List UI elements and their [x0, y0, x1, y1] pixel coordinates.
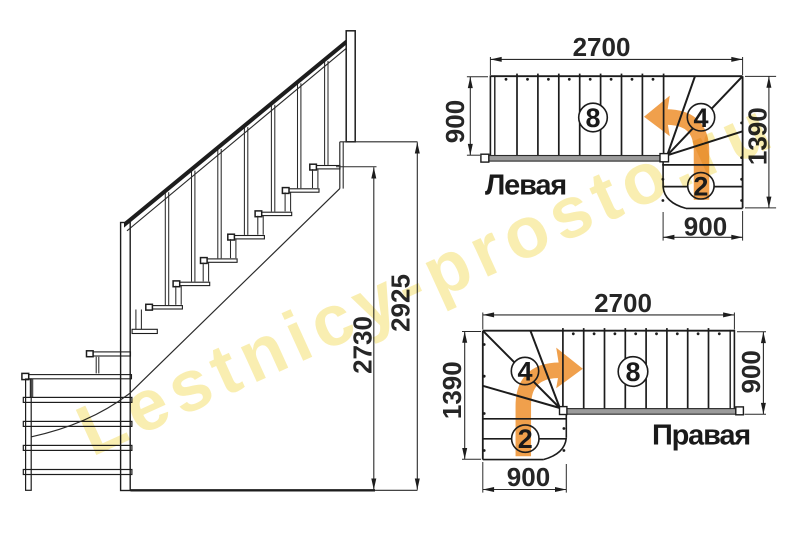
svg-text:900: 900 [684, 211, 727, 241]
svg-text:8: 8 [585, 103, 600, 133]
svg-text:900: 900 [736, 350, 766, 393]
svg-text:900: 900 [440, 100, 470, 143]
svg-text:8: 8 [625, 357, 640, 387]
svg-text:2: 2 [518, 424, 533, 454]
svg-text:1390: 1390 [437, 361, 467, 419]
svg-text:2700: 2700 [594, 288, 652, 318]
svg-text:2700: 2700 [573, 32, 631, 62]
svg-text:4: 4 [517, 357, 532, 387]
svg-text:900: 900 [507, 462, 550, 492]
svg-text:Правая: Правая [652, 420, 750, 452]
